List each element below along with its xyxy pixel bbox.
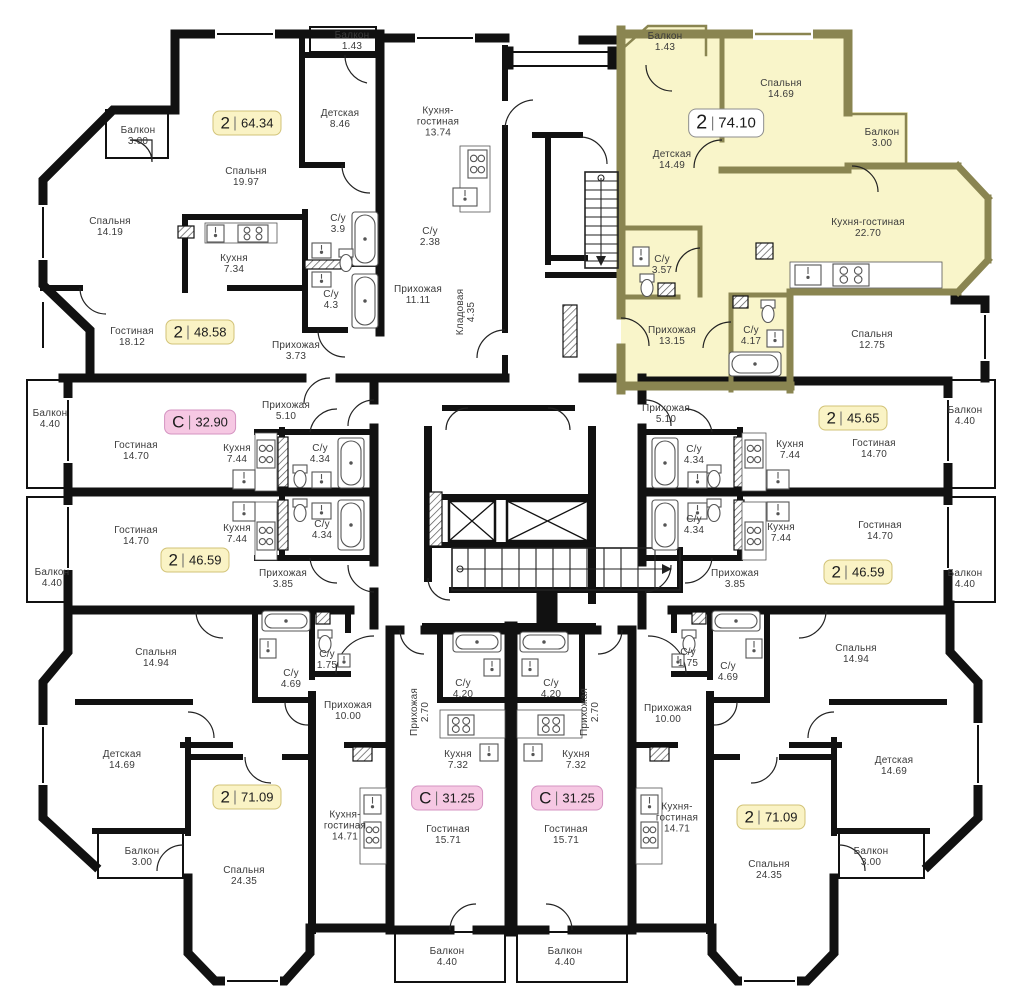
stove-icon: [448, 715, 474, 735]
room-label: Спальня 24.35: [223, 865, 265, 887]
room-label: Балкон 4.40: [430, 946, 465, 968]
room-label: Прихожая 5.10: [642, 403, 690, 425]
room-label: С/у 3.57: [652, 254, 672, 276]
room-label: Гостиная 18.12: [110, 326, 154, 348]
room-label: Прихожая 10.00: [324, 700, 372, 722]
badge-separator: [841, 411, 842, 425]
room-label: Прихожая 3.73: [272, 340, 320, 362]
room-label: Кухня 7.32: [444, 749, 472, 771]
room-label: Балкон 1.43: [335, 30, 370, 52]
room-label: Кухня 7.32: [562, 749, 590, 771]
room-label: Спальня 14.94: [135, 647, 177, 669]
badge-separator: [189, 415, 190, 429]
badge-rooms: С: [172, 414, 184, 431]
room-label: Детская 14.69: [103, 749, 141, 771]
room-label: Прихожая 13.15: [648, 325, 696, 347]
room-label: С/у 3.9: [330, 213, 346, 235]
room-label: Кухня 7.44: [223, 523, 251, 545]
room-label: Прихожая 3.85: [259, 568, 307, 590]
badge-rooms: 2: [744, 809, 753, 826]
room-label: Балкон 4.40: [948, 405, 983, 427]
room-label: Гостиная 14.70: [858, 520, 902, 542]
room-label: Гостиная 14.70: [114, 440, 158, 462]
stove-icon: [468, 150, 487, 178]
room-label: Кухня- гостиная 14.71: [324, 810, 366, 843]
room-label: С/у 4.34: [312, 519, 332, 541]
apartment-badge[interactable]: 274.10: [688, 109, 764, 138]
badge-rooms: 2: [826, 410, 835, 427]
badge-separator: [556, 791, 557, 805]
room-label: Кухня 7.34: [220, 253, 248, 275]
room-label: Гостиная 15.71: [426, 824, 470, 846]
badge-separator: [759, 810, 760, 824]
room-label: Спальня 14.69: [760, 78, 802, 100]
badge-separator: [235, 790, 236, 804]
badge-separator: [712, 116, 713, 130]
apartment-badge[interactable]: С31.25: [531, 786, 603, 811]
room-label: С/у 4.69: [281, 668, 301, 690]
badge-area: 48.58: [194, 326, 227, 339]
room-label: С/у 1.75: [678, 647, 698, 669]
room-label: Прихожая 10.00: [644, 703, 692, 725]
room-label: Балкон 4.40: [35, 567, 70, 589]
room-label: С/у 4.34: [684, 514, 704, 536]
stairs-upper: [585, 172, 618, 268]
stove-icon: [745, 522, 763, 550]
stove-icon: [364, 822, 381, 848]
room-label: С/у 4.17: [741, 325, 761, 347]
room-label: Детская 14.69: [875, 755, 913, 777]
apartment-badge[interactable]: С32.90: [164, 410, 236, 435]
room-label: Балкон 3.00: [125, 846, 160, 868]
room-label: Кухня-гостиная 22.70: [831, 217, 905, 239]
badge-separator: [235, 116, 236, 130]
room-label: Прихожая 11.11: [394, 284, 442, 306]
room-label: Балкон 1.43: [648, 31, 683, 53]
stove-icon: [538, 715, 564, 735]
badge-area: 46.59: [852, 566, 885, 579]
room-label: Кухня- гостиная 13.74: [417, 106, 459, 139]
apartment-badge[interactable]: 271.09: [736, 805, 805, 830]
room-label: Спальня 12.75: [851, 329, 893, 351]
badge-rooms: С: [539, 790, 551, 807]
room-label: С/у 4.20: [541, 678, 561, 700]
room-label: Прихожая 5.10: [262, 400, 310, 422]
room-label: Балкон 3.00: [854, 846, 889, 868]
badge-area: 74.10: [718, 117, 756, 130]
badge-area: 32.90: [195, 416, 228, 429]
room-label: Прихожая 3.85: [711, 568, 759, 590]
room-label: Спальня 14.94: [835, 643, 877, 665]
badge-separator: [846, 565, 847, 579]
room-label: С/у 4.69: [718, 661, 738, 683]
room-label: С/у 1.75: [317, 649, 337, 671]
room-label: Балкон 4.40: [548, 946, 583, 968]
room-label: Кухня 7.44: [767, 522, 795, 544]
room-label: Балкон 4.40: [33, 408, 68, 430]
room-label: Кладовая 4.35: [455, 289, 477, 335]
badge-separator: [183, 553, 184, 567]
stove-icon: [257, 522, 275, 550]
stove-icon: [238, 225, 268, 242]
stove-icon: [833, 264, 869, 286]
apartment-badge[interactable]: 264.34: [212, 111, 281, 136]
badge-rooms: 2: [831, 564, 840, 581]
apartment-badge[interactable]: 246.59: [160, 548, 229, 573]
badge-area: 45.65: [847, 412, 880, 425]
badge-separator: [188, 325, 189, 339]
room-label: Балкон 3.00: [865, 127, 900, 149]
badge-area: 71.09: [765, 811, 798, 824]
stove-icon: [745, 440, 763, 468]
room-label: Детская 8.46: [321, 108, 359, 130]
apartment-badge[interactable]: С31.25: [411, 786, 483, 811]
floor-plan: Балкон 3.00Спальня 14.19Спальня 19.97Дет…: [0, 0, 1022, 1000]
badge-area: 64.34: [241, 117, 274, 130]
apartment-badge[interactable]: 245.65: [818, 406, 887, 431]
badge-rooms: 2: [696, 115, 707, 132]
badge-area: 46.59: [189, 554, 222, 567]
elevator-shafts: [449, 501, 588, 541]
room-label: С/у 2.38: [420, 226, 440, 248]
badge-area: 31.25: [562, 792, 595, 805]
room-label: Кухня 7.44: [223, 443, 251, 465]
room-label: С/у 4.20: [453, 678, 473, 700]
apartment-badge[interactable]: 248.58: [165, 320, 234, 345]
room-label: Гостиная 15.71: [544, 824, 588, 846]
room-label: Балкон 3.00: [121, 125, 156, 147]
room-label: Балкон 4.40: [948, 568, 983, 590]
badge-rooms: С: [419, 790, 431, 807]
room-label: Гостиная 14.70: [852, 438, 896, 460]
badge-rooms: 2: [220, 115, 229, 132]
apartment-badge[interactable]: 271.09: [212, 785, 281, 810]
room-label: С/у 4.34: [684, 444, 704, 466]
stove-icon: [257, 440, 275, 468]
badge-separator: [436, 791, 437, 805]
room-label: Прихожая 2.70: [579, 688, 601, 736]
room-label: Гостиная 14.70: [114, 525, 158, 547]
room-label: Прихожая 2.70: [409, 688, 431, 736]
badge-rooms: 2: [220, 789, 229, 806]
apartment-badge[interactable]: 246.59: [823, 560, 892, 585]
room-label: С/у 4.3: [323, 289, 339, 311]
room-label: Детская 14.49: [653, 149, 691, 171]
room-label: Спальня 14.19: [89, 216, 131, 238]
room-label: Спальня 19.97: [225, 166, 267, 188]
badge-area: 71.09: [241, 791, 274, 804]
room-label: Кухня 7.44: [776, 439, 804, 461]
badge-rooms: 2: [173, 324, 182, 341]
room-label: Кухня- гостиная 14.71: [656, 802, 698, 835]
badge-area: 31.25: [442, 792, 475, 805]
room-label: Спальня 24.35: [748, 859, 790, 881]
room-label: С/у 4.34: [310, 443, 330, 465]
badge-rooms: 2: [168, 552, 177, 569]
